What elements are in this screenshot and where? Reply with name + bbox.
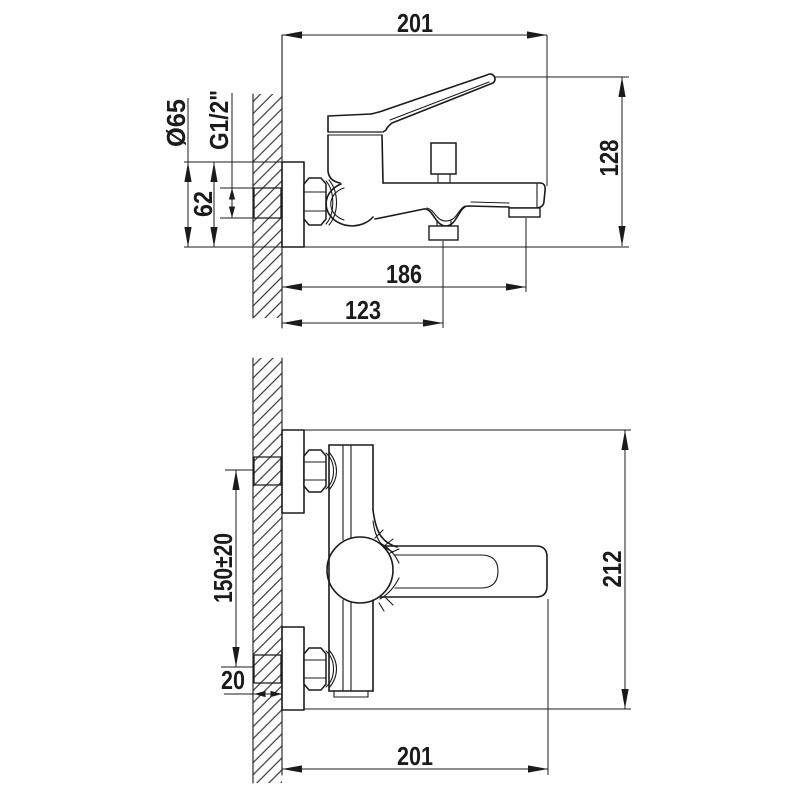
dim-label-wall-to-diverter: 123 <box>345 295 381 325</box>
dim-overall-depth-plan: 212 <box>597 430 627 709</box>
dim-label-wall-thickness: 20 <box>221 665 245 695</box>
dim-label-overall-width-plan: 201 <box>397 741 433 771</box>
spout-side <box>375 183 545 226</box>
handle-column-side <box>328 114 383 183</box>
mounting-nut-plan-lower <box>304 648 337 690</box>
dim-wall-to-aerator: 186 <box>282 259 526 289</box>
escutcheon-side <box>282 162 304 247</box>
dim-overall-width-side: 201 <box>282 8 547 38</box>
dim-overall-width-plan: 201 <box>282 741 548 771</box>
dim-supply-centers: 150±20 <box>208 470 238 667</box>
wall-section-side <box>253 35 282 328</box>
dim-label-overall-height-side: 128 <box>594 140 624 177</box>
side-view: 201 128 Ø65 62 G1/2" 186 <box>161 8 629 328</box>
dim-label-escutcheon-diameter: Ø65 <box>161 99 191 147</box>
dim-label-escutcheon-height: 62 <box>188 191 218 217</box>
handle-ball-plan <box>327 530 399 611</box>
escutcheon-plan-upper <box>282 430 304 513</box>
technical-drawing-page: 201 128 Ø65 62 G1/2" 186 <box>0 0 800 800</box>
mixer-body-plan <box>329 445 397 697</box>
escutcheon-plan-lower <box>282 627 304 710</box>
diverter-pull-side <box>429 221 458 240</box>
dim-wall-to-diverter: 123 <box>282 295 443 325</box>
mounting-nut-plan-upper <box>304 450 337 492</box>
dim-label-thread-size: G1/2" <box>204 90 234 150</box>
dim-escutcheon-height: 62 <box>188 162 218 247</box>
dim-label-supply-centers: 150±20 <box>208 533 238 603</box>
dim-overall-height-side: 128 <box>594 77 624 246</box>
handle-lever-plan <box>380 546 547 597</box>
dim-label-overall-width-side: 201 <box>397 8 433 38</box>
aerator-side <box>509 208 540 217</box>
dim-label-wall-to-aerator: 186 <box>386 259 422 289</box>
dim-escutcheon-diameter: Ø65 <box>161 98 191 247</box>
dimensions-side: 201 128 Ø65 62 G1/2" 186 <box>161 8 624 325</box>
handle-lever-side <box>371 74 495 132</box>
plan-view: 212 201 150±20 20 <box>208 358 631 783</box>
dim-label-overall-depth-plan: 212 <box>597 551 627 588</box>
diverter-knob-side <box>431 143 456 183</box>
faucet-dimension-drawing: 201 128 Ø65 62 G1/2" 186 <box>0 0 800 800</box>
mounting-nut-side <box>304 178 326 225</box>
wall-section-plan <box>253 358 282 783</box>
